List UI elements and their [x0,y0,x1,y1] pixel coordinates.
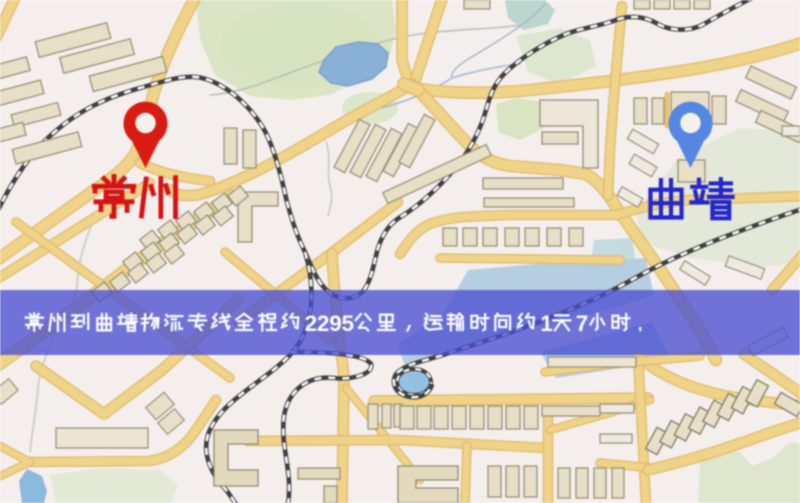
svg-text:2: 2 [305,311,318,336]
svg-text:7: 7 [576,311,589,336]
svg-text:9: 9 [329,311,342,336]
svg-text:5: 5 [342,311,355,336]
svg-text:2: 2 [317,311,330,336]
svg-text:1: 1 [540,311,553,336]
